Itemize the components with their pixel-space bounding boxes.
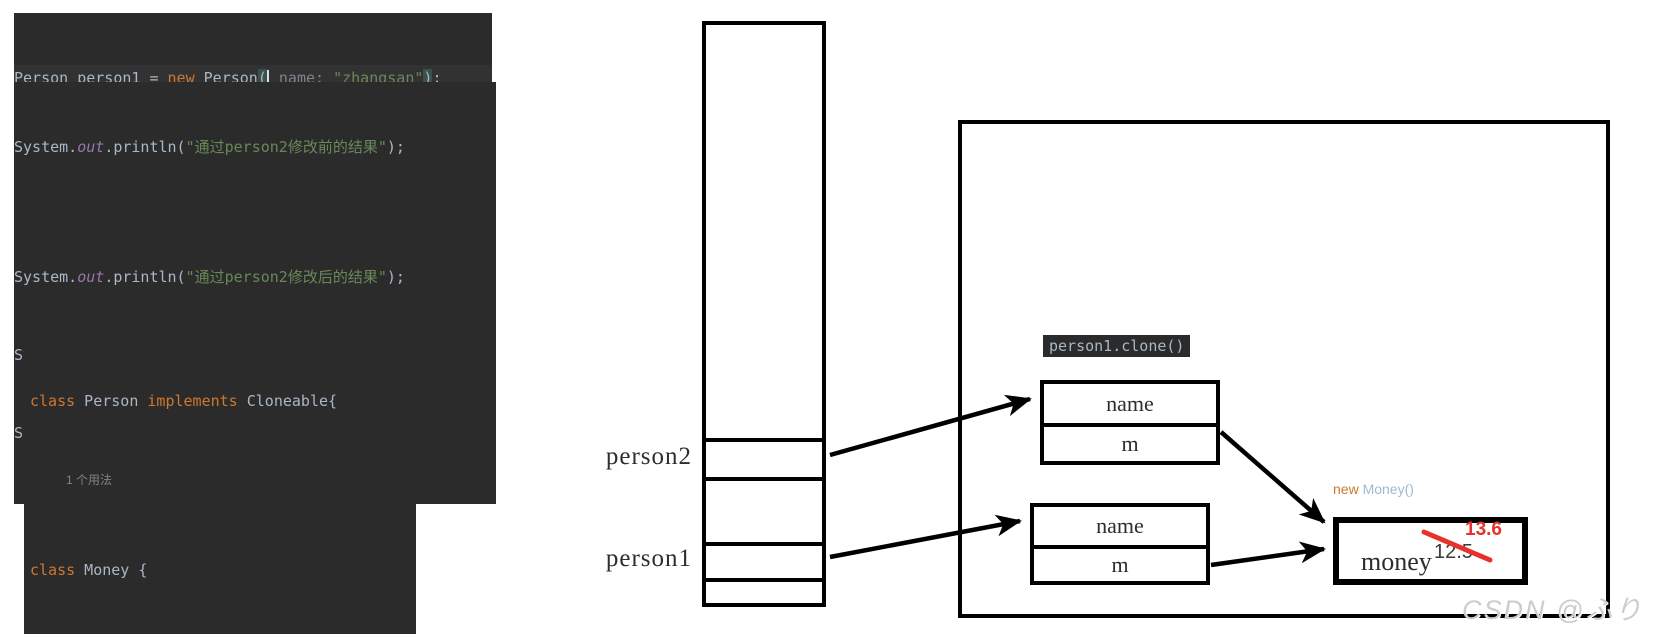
person1-object-box: name m [1030, 503, 1210, 585]
stack-cell-divider [706, 542, 822, 546]
stack-memory-box [702, 21, 826, 607]
name-field-cell: name [1034, 507, 1206, 545]
page: Person person1 = new Person( name: "zhan… [0, 0, 1670, 634]
clone-call-label: person1.clone() [1043, 335, 1190, 357]
new-money-label: new Money() [1333, 481, 1414, 497]
stack-cell-divider [706, 578, 822, 582]
person1-reference-label: person1 [540, 545, 692, 573]
money-new-value: 13.6 [1465, 519, 1502, 541]
watermark: CSDN @ふり [1462, 588, 1643, 627]
stack-cell-divider [706, 438, 822, 442]
code-line: class Person implements Cloneable{ [30, 388, 416, 414]
stack-cell-divider [706, 477, 822, 481]
person2-reference-label: person2 [540, 443, 692, 471]
code-line: System.out.println("通过person2修改后的结果"); [14, 264, 496, 290]
money-old-value: 12.5 [1434, 541, 1473, 564]
code-line: System.out.println("通过person2修改前的结果"); [14, 134, 496, 160]
code-line: class Money { [30, 557, 344, 583]
m-field-cell: m [1044, 423, 1216, 461]
usage-hint-line: 1 个用法 [30, 466, 416, 492]
code-editor-class-money[interactable]: class Money { public double money = 12.5… [24, 505, 344, 634]
money-field-label: money [1361, 547, 1432, 577]
name-field-cell: name [1044, 384, 1216, 423]
money-object-box: money 12.5 13.6 [1333, 517, 1528, 585]
m-field-cell: m [1034, 545, 1206, 581]
clone-person-object-box: name m [1040, 380, 1220, 465]
